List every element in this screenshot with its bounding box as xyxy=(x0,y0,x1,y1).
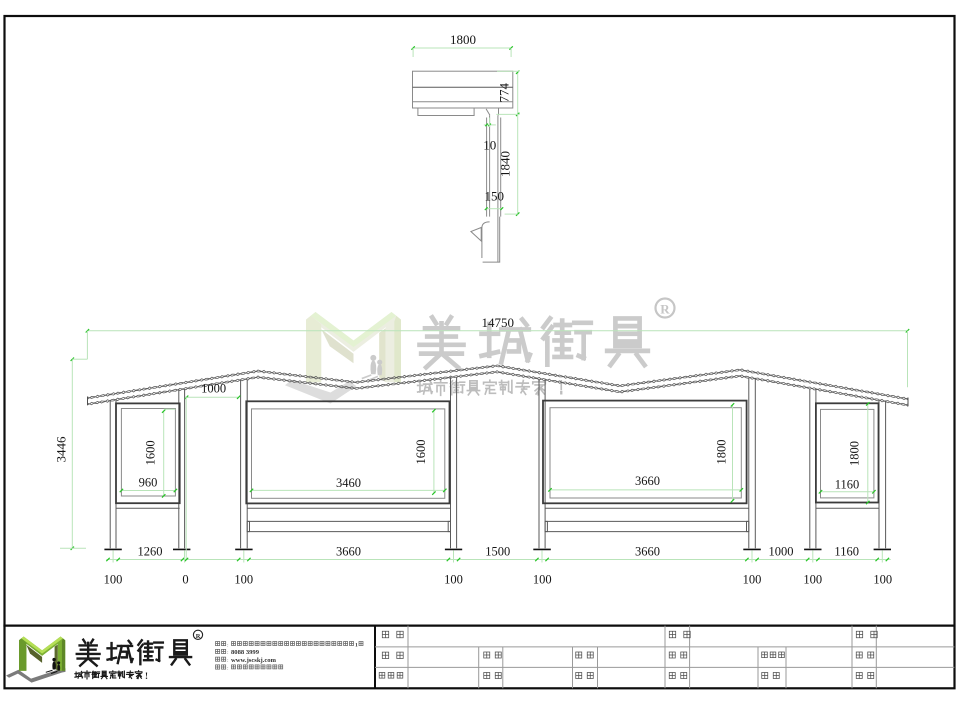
svg-text:150: 150 xyxy=(485,188,505,203)
svg-text:774: 774 xyxy=(497,82,512,102)
svg-text:1600: 1600 xyxy=(414,440,428,465)
svg-text:1: 1 xyxy=(355,642,358,648)
svg-text:3660: 3660 xyxy=(635,474,660,488)
svg-text:100: 100 xyxy=(104,572,123,586)
svg-text:1260: 1260 xyxy=(138,544,163,558)
svg-text:1500: 1500 xyxy=(485,544,510,558)
svg-text:1800: 1800 xyxy=(848,441,862,466)
svg-text:100: 100 xyxy=(873,572,892,586)
svg-text:10: 10 xyxy=(483,138,496,153)
svg-text:www.jscskj.com: www.jscskj.com xyxy=(231,657,277,664)
svg-text:3460: 3460 xyxy=(336,476,361,490)
svg-text:R: R xyxy=(660,302,670,317)
svg-text:100: 100 xyxy=(803,572,822,586)
svg-text:1160: 1160 xyxy=(835,478,860,492)
svg-text:100: 100 xyxy=(444,572,463,586)
svg-text:1600: 1600 xyxy=(143,440,157,465)
svg-text:3660: 3660 xyxy=(635,544,660,558)
svg-text:1800: 1800 xyxy=(715,440,729,465)
svg-text:1160: 1160 xyxy=(834,544,859,558)
svg-text:0: 0 xyxy=(182,572,188,586)
svg-text:1000: 1000 xyxy=(769,544,794,558)
svg-text:3446: 3446 xyxy=(53,436,68,463)
svg-text:8088 3999: 8088 3999 xyxy=(231,649,260,656)
svg-text:1000: 1000 xyxy=(201,382,226,396)
svg-text:R: R xyxy=(196,633,201,640)
svg-text:100: 100 xyxy=(533,572,552,586)
svg-text:100: 100 xyxy=(743,572,762,586)
svg-text:3660: 3660 xyxy=(336,544,361,558)
svg-text:100: 100 xyxy=(234,572,253,586)
svg-text:1840: 1840 xyxy=(498,151,513,177)
svg-text:1800: 1800 xyxy=(450,32,476,47)
svg-text:14750: 14750 xyxy=(481,315,514,330)
svg-text:960: 960 xyxy=(139,476,158,490)
svg-text:!: ! xyxy=(145,671,148,681)
